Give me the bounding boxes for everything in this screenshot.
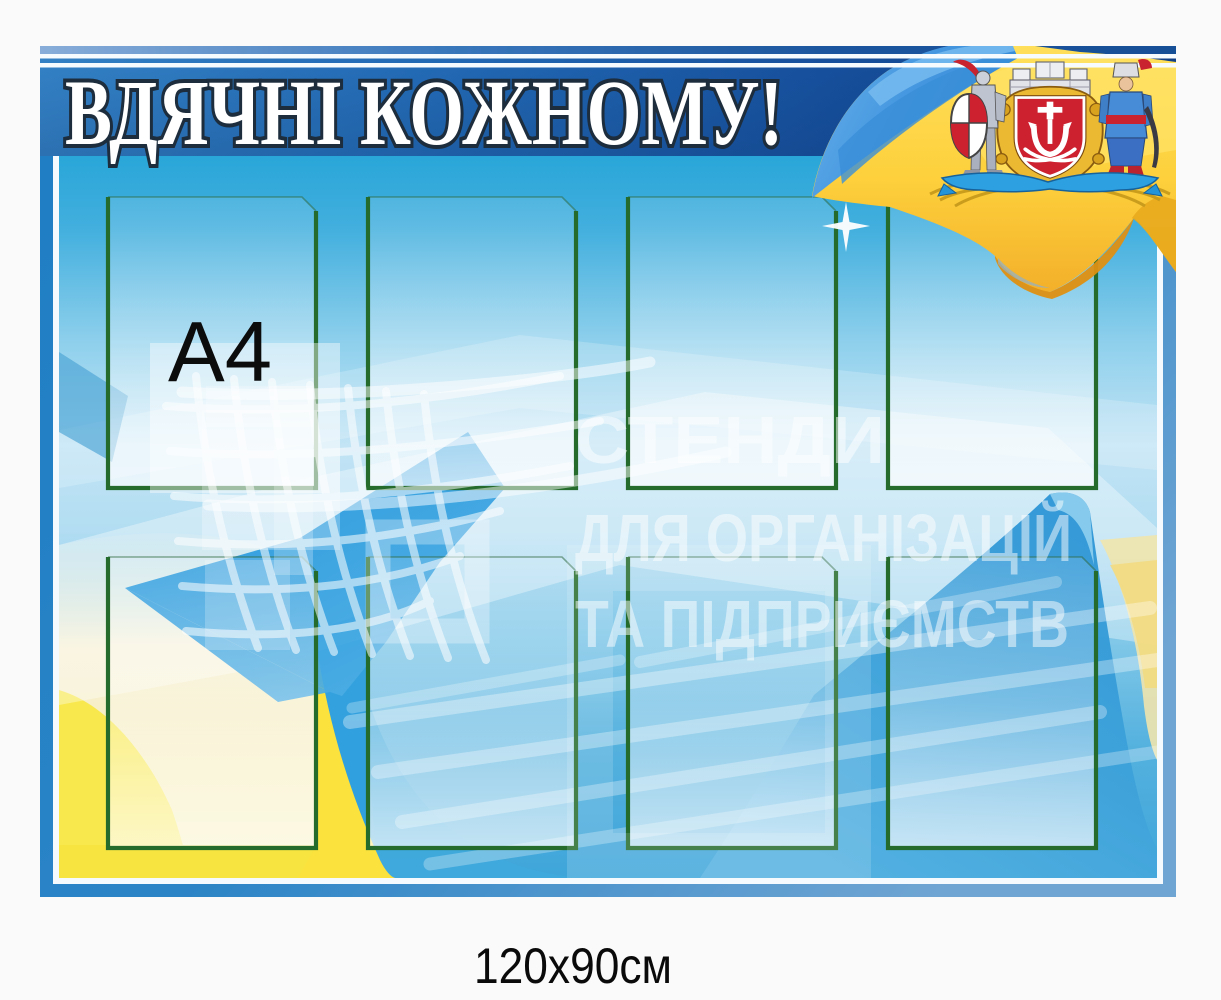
svg-text:ДЛЯ ОРГАНІЗАЦІЙ: ДЛЯ ОРГАНІЗАЦІЙ (575, 500, 1072, 576)
svg-text:СТЕНДИ: СТЕНДИ (575, 403, 885, 478)
svg-text:ТА ПІДПРИЄМСТВ: ТА ПІДПРИЄМСТВ (575, 587, 1069, 662)
svg-text:120x90см: 120x90см (474, 938, 672, 994)
svg-text:А4: А4 (168, 305, 272, 400)
svg-text:ВДЯЧНІ КОЖНОМУ!: ВДЯЧНІ КОЖНОМУ! (65, 62, 783, 165)
